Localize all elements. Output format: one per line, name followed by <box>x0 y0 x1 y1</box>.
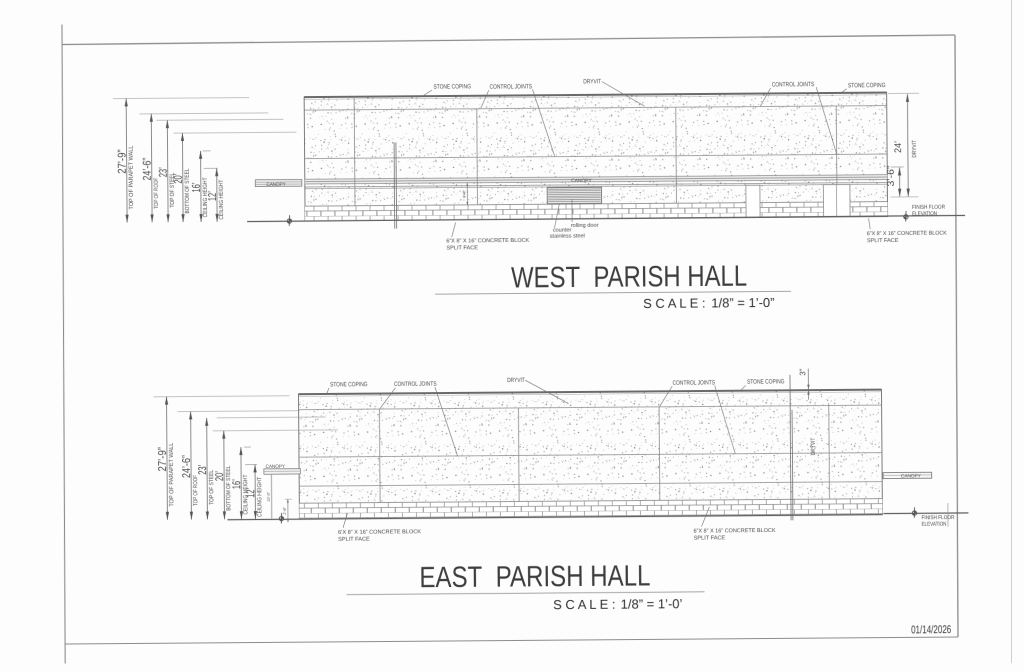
svg-text:TOP OF PARAPET WALL: TOP OF PARAPET WALL <box>128 145 136 210</box>
svg-text:12’: 12’ <box>245 488 257 498</box>
svg-text:CEILING HEIGHT: CEILING HEIGHT <box>218 179 225 219</box>
svg-text:16’: 16’ <box>191 182 203 192</box>
svg-text:6”X 8” X 16” CONCRETE BLOCK: 6”X 8” X 16” CONCRETE BLOCK <box>446 238 529 245</box>
svg-text:1/8” = 1’-0’: 1/8” = 1’-0’ <box>621 596 683 611</box>
svg-text:01/14/2026: 01/14/2026 <box>911 624 951 636</box>
svg-text:S C A L E :: S C A L E : <box>553 597 616 612</box>
svg-text:6”X 8” X 16” CONCRETE BLOCK: 6”X 8” X 16” CONCRETE BLOCK <box>867 231 947 238</box>
svg-text:24’-6”: 24’-6” <box>142 157 154 180</box>
svg-text:16’: 16’ <box>231 479 243 489</box>
svg-text:20’: 20’ <box>214 471 226 481</box>
svg-text:23’: 23’ <box>197 465 209 475</box>
svg-text:ELEVATION: ELEVATION <box>922 522 947 528</box>
svg-text:FINISH FLOOR: FINISH FLOOR <box>912 204 945 210</box>
svg-text:SPLIT FACE: SPLIT FACE <box>694 535 726 541</box>
svg-text:STONE COPING: STONE COPING <box>330 381 368 388</box>
svg-text:CONTROL JOINTS: CONTROL JOINTS <box>394 381 437 388</box>
svg-text:3’-6”: 3’-6” <box>886 165 897 186</box>
svg-text:STONE COPING: STONE COPING <box>848 82 886 89</box>
svg-text:CANOPY: CANOPY <box>571 178 592 184</box>
svg-text:SPLIT FACE: SPLIT FACE <box>867 238 899 244</box>
svg-text:CANOPY: CANOPY <box>901 473 922 479</box>
svg-text:6’X 8” X 16” CONCRETE BLOCK: 6’X 8” X 16” CONCRETE BLOCK <box>338 529 421 536</box>
svg-text:23’: 23’ <box>158 167 170 177</box>
svg-text:TOP OF PARAPET WALL: TOP OF PARAPET WALL <box>168 442 176 507</box>
svg-text:20’: 20’ <box>173 174 185 184</box>
svg-text:DRYVIT: DRYVIT <box>810 437 817 455</box>
svg-text:CONTROL JOINTS: CONTROL JOINTS <box>490 83 533 90</box>
svg-text:24’: 24’ <box>893 141 904 153</box>
svg-text:SPLIT FACE: SPLIT FACE <box>446 245 478 251</box>
svg-text:24’-6”: 24’-6” <box>181 455 193 478</box>
svg-text:CONTROL JOINTS: CONTROL JOINTS <box>772 81 815 88</box>
svg-text:stainless steel: stainless steel <box>550 233 585 240</box>
svg-text:EAST PARISH HALL: EAST PARISH HALL <box>419 559 650 594</box>
svg-text:12’: 12’ <box>207 191 219 201</box>
svg-text:DRYVIT: DRYVIT <box>911 140 918 158</box>
svg-text:6”X 8” X 16” CONCRETE BLOCK: 6”X 8” X 16” CONCRETE BLOCK <box>694 528 776 535</box>
svg-text:10’-0”: 10’-0” <box>267 491 271 501</box>
svg-text:1/8” = 1’-0”: 1/8” = 1’-0” <box>711 295 774 310</box>
svg-text:3”: 3” <box>798 368 807 375</box>
svg-text:TOP OF ROOF: TOP OF ROOF <box>153 178 160 209</box>
svg-text:DRYVIT: DRYVIT <box>507 377 525 384</box>
svg-text:FINISH FLOOR: FINISH FLOOR <box>921 515 954 521</box>
svg-text:SPLIT FACE: SPLIT FACE <box>338 536 370 542</box>
svg-text:CEILING HEIGHT: CEILING HEIGHT <box>256 477 263 517</box>
svg-text:S C A L E :: S C A L E : <box>643 295 706 310</box>
svg-text:TOP OF ROOF: TOP OF ROOF <box>192 475 199 506</box>
svg-text:27’-9”: 27’-9” <box>117 149 129 174</box>
svg-text:6’-8”: 6’-8” <box>462 189 466 197</box>
svg-text:CANOPY: CANOPY <box>266 182 286 188</box>
svg-text:ELEVATION: ELEVATION <box>912 211 937 217</box>
svg-text:STONE COPING: STONE COPING <box>747 379 785 386</box>
svg-text:2’-8”: 2’-8” <box>283 506 287 514</box>
svg-text:rolling door: rolling door <box>571 222 599 229</box>
svg-text:27’-9”: 27’-9” <box>157 447 169 472</box>
svg-text:STONE COPING: STONE COPING <box>433 83 471 90</box>
svg-text:WEST PARISH HALL: WEST PARISH HALL <box>511 260 747 295</box>
svg-text:DRYVIT: DRYVIT <box>583 78 601 85</box>
svg-text:CONTROL JOINTS: CONTROL JOINTS <box>672 380 715 387</box>
